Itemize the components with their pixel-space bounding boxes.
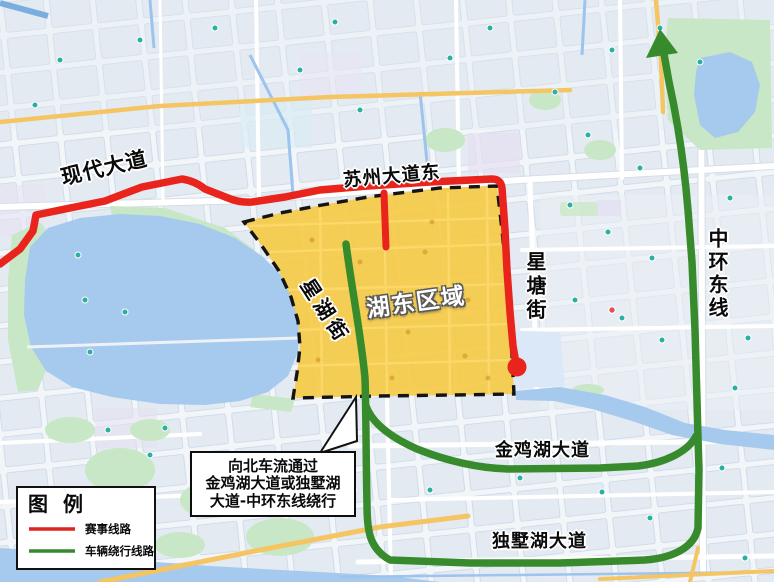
route-endpoint-dot [508, 358, 527, 377]
callout-line-3: 大道-中环东线绕行 [194, 493, 352, 510]
legend-label-detour-route: 车辆绕行线路 [85, 543, 154, 559]
event-route-branch [384, 193, 386, 247]
legend: 图 例 赛事线路 车辆绕行线路 [16, 486, 156, 570]
detour-arrowhead-icon [646, 29, 678, 58]
callout-line-2: 金鸡湖大道或独墅湖 [194, 475, 352, 492]
callout-pointer [320, 397, 357, 453]
detour-callout: 向北车流通过 金鸡湖大道或独墅湖 大道-中环东线绕行 [190, 451, 356, 517]
callout-line-1: 向北车流通过 [194, 458, 352, 475]
legend-item-event-route: 赛事线路 [28, 521, 146, 537]
map-canvas: 现代大道 苏州大道东 星湖街 星塘街 中环东线 金鸡湖大道 独墅湖大道 湖东区域… [0, 0, 774, 582]
detour-route-swatch-icon [28, 547, 76, 555]
legend-item-detour-route: 车辆绕行线路 [28, 543, 146, 559]
legend-label-event-route: 赛事线路 [85, 521, 131, 537]
detour-route-inner [366, 406, 696, 469]
legend-title: 图 例 [28, 493, 146, 515]
event-route-swatch-icon [28, 525, 76, 533]
